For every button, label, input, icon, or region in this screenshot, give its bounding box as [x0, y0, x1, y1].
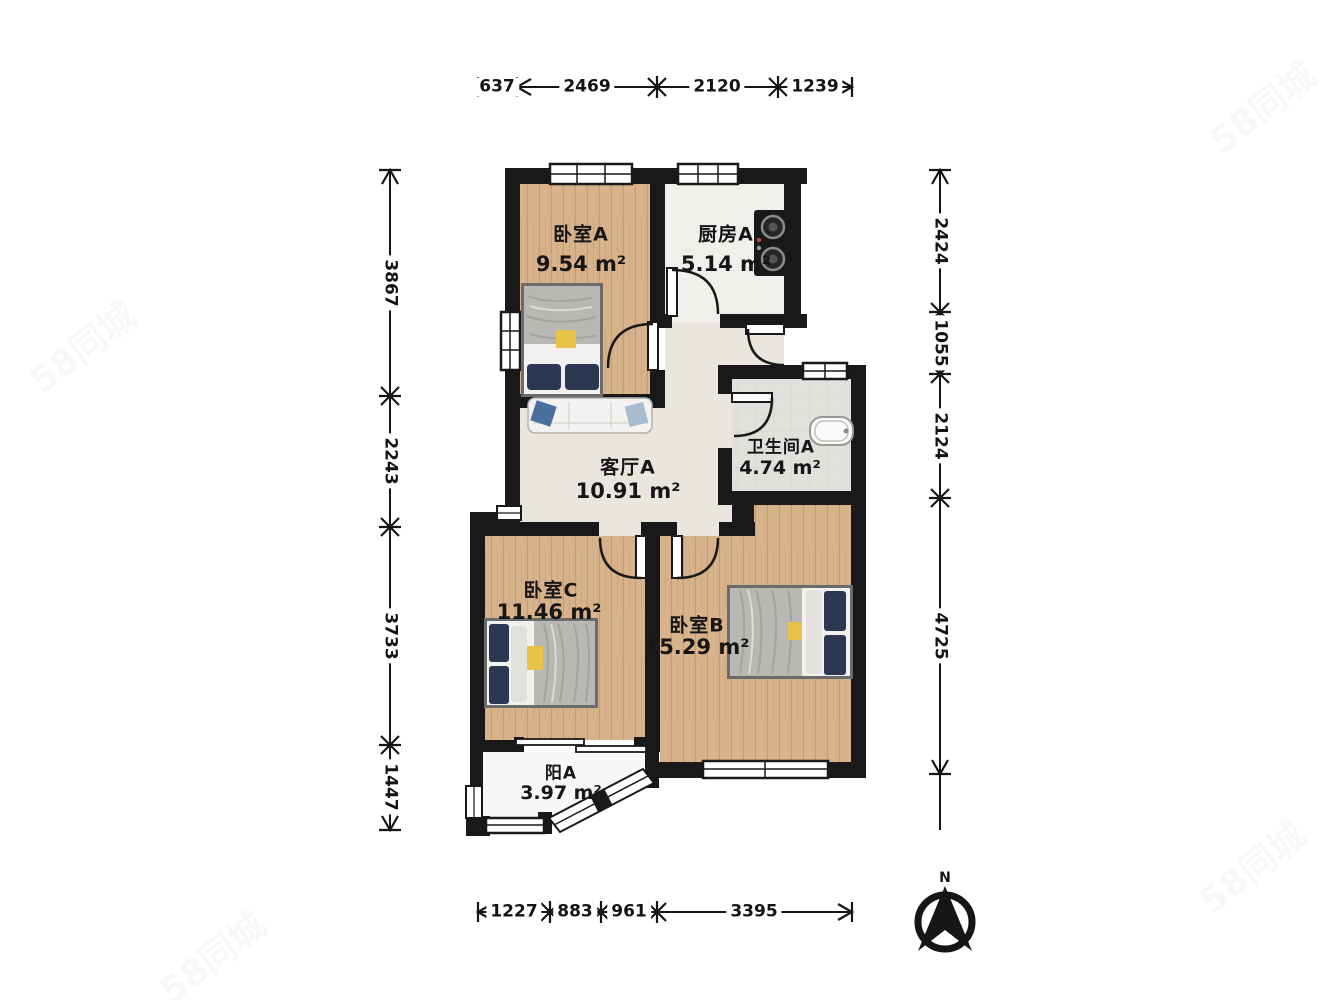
door-leaf	[667, 268, 677, 316]
window-bathroom-top	[803, 363, 847, 379]
door-leaf	[746, 324, 784, 334]
floorplan-page: N 卧室A 9.54 m² 厨房A 5.14 m² 客厅A 10.91 m² 卫…	[0, 0, 1333, 1000]
dim-left-3: 3733	[381, 608, 400, 663]
dim-right-1: 2424	[931, 213, 950, 268]
dim-right-4: 4725	[931, 608, 950, 663]
wall-segment	[828, 762, 866, 778]
room-area-bathroom-a: 4.74 m²	[739, 457, 821, 479]
window-balcony-left	[466, 786, 482, 818]
window-bedroom-a-top	[550, 164, 632, 184]
north-arrow-icon: N	[918, 870, 972, 951]
dim-left-1: 3867	[381, 255, 400, 310]
wall-segment	[719, 522, 755, 536]
window-bedroom-a-left	[501, 312, 520, 370]
room-label-balcony-a: 阳A	[545, 759, 577, 784]
dim-top-1: 637	[475, 78, 519, 97]
door-leaf	[732, 393, 772, 402]
room-label-bedroom-c: 卧室C	[524, 576, 579, 603]
door-leaf	[648, 322, 658, 370]
wall-segment	[470, 522, 485, 752]
room-area-bedroom-b: 15.29 m²	[645, 635, 750, 659]
room-label-living-a: 客厅A	[600, 453, 656, 480]
compass-needle	[918, 886, 972, 951]
window-kitchen-top	[678, 164, 738, 184]
dim-right-3: 2124	[931, 408, 950, 463]
room-area-bedroom-c: 11.46 m²	[497, 600, 602, 624]
sliding-door-bedroom-c-balcony	[516, 739, 646, 752]
room-label-kitchen-a: 厨房A	[698, 220, 754, 247]
room-area-bedroom-a: 9.54 m²	[536, 252, 626, 276]
dim-right-2: 1055	[931, 315, 950, 370]
window-living-west	[497, 506, 521, 520]
dim-top-2: 2469	[559, 78, 614, 97]
dim-left-4: 1447	[381, 759, 400, 814]
north-label: N	[939, 870, 951, 886]
bed-bedroom-c	[484, 618, 598, 708]
dim-bottom-1: 1227	[486, 903, 541, 922]
window-bedroom-b-bottom	[703, 761, 828, 778]
dim-bottom-2: 883	[553, 903, 597, 922]
room-area-living-a: 10.91 m²	[576, 479, 681, 503]
dim-top-3: 2120	[689, 78, 744, 97]
dimension-line-right	[929, 170, 951, 830]
wall-segment	[505, 168, 520, 408]
bed-bedroom-b	[727, 585, 853, 679]
room-area-kitchen-a: 5.14 m²	[681, 252, 771, 276]
dim-top-4: 1239	[787, 78, 842, 97]
bathtub-bathroom	[810, 417, 853, 445]
window-balcony-bottom	[486, 818, 544, 833]
wall-segment	[645, 762, 703, 778]
room-label-bedroom-a: 卧室A	[553, 220, 609, 247]
room-label-bedroom-b: 卧室B	[669, 611, 724, 638]
wall-segment	[650, 168, 665, 323]
sofa-living-room	[528, 398, 652, 433]
dim-bottom-3: 961	[607, 903, 651, 922]
dim-left-2: 2243	[381, 433, 400, 488]
room-area-balcony-a: 3.97 m²	[520, 782, 602, 804]
door-leaf	[672, 536, 682, 578]
door-leaf	[636, 536, 646, 578]
room-label-bathroom-a: 卫生间A	[747, 433, 815, 458]
dim-bottom-4: 3395	[726, 903, 781, 922]
bed-bedroom-a	[521, 283, 603, 397]
wall-segment	[718, 365, 732, 394]
